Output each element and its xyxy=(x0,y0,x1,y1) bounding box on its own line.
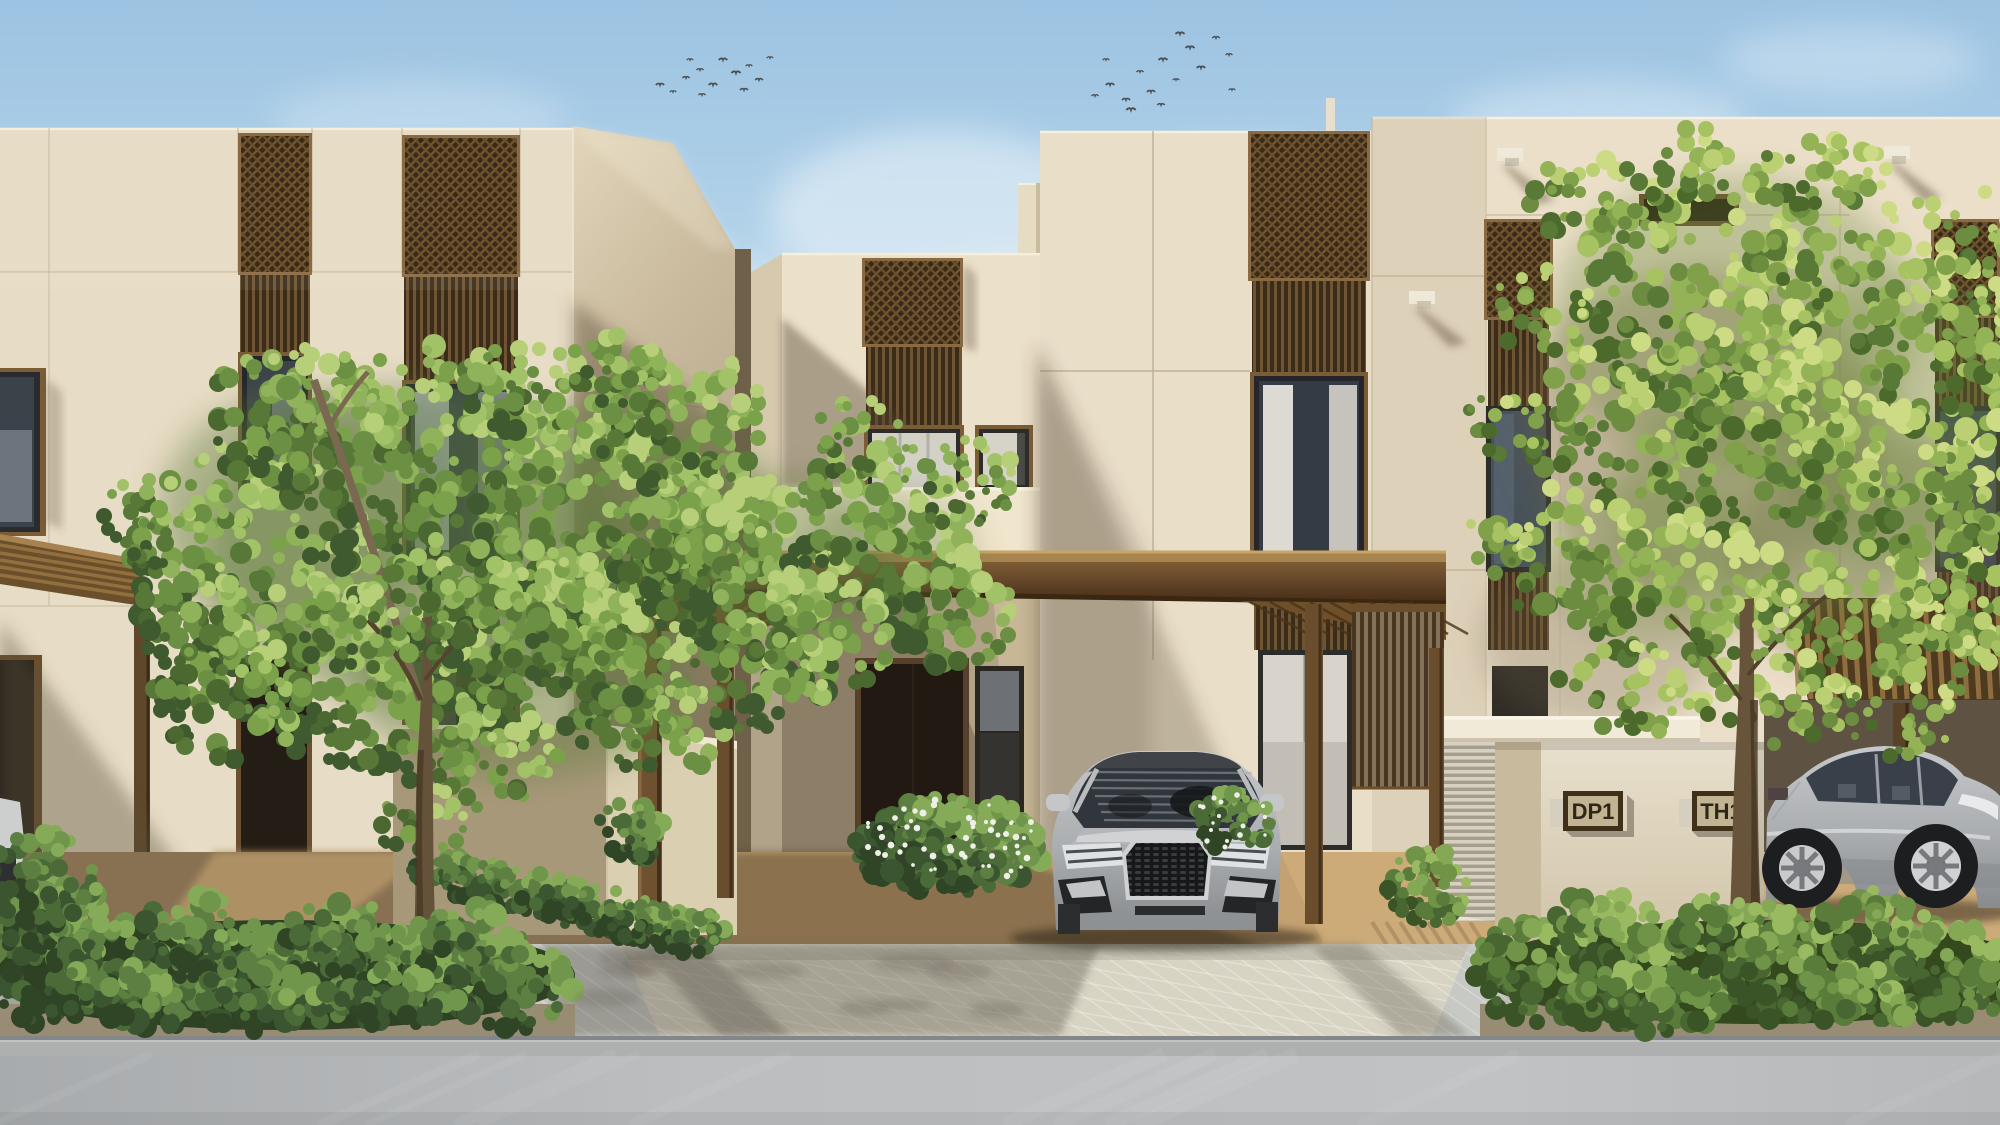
svg-text:DP1: DP1 xyxy=(1572,799,1615,824)
